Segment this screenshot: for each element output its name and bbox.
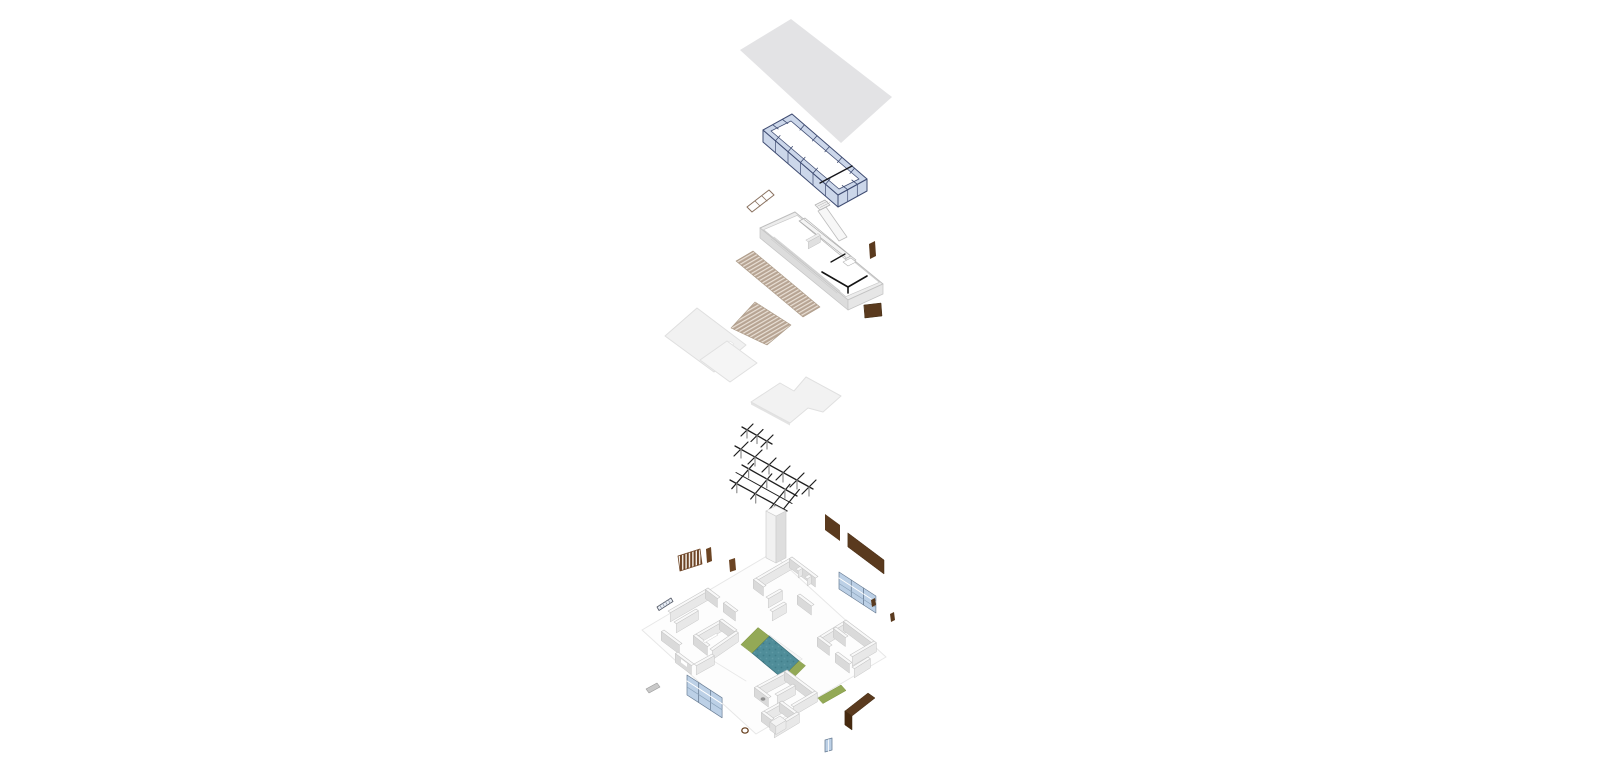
metal-sliver — [646, 683, 660, 693]
wood-speck — [890, 612, 895, 622]
cross-beam — [732, 464, 754, 489]
wood-sliver — [706, 547, 712, 563]
frame-outline — [747, 190, 774, 212]
tower-face-sw — [766, 511, 776, 563]
cross-beam — [751, 474, 772, 499]
wall-opening — [761, 697, 766, 701]
roof-slab — [740, 19, 892, 143]
service-tower — [766, 506, 786, 563]
wood-sliver — [729, 558, 736, 572]
ramp-steps — [815, 200, 830, 210]
window-frame-piece — [747, 190, 774, 212]
wood-panel — [825, 514, 840, 541]
wood-panel — [869, 241, 876, 259]
page — [0, 0, 1600, 765]
floor-plate — [751, 377, 841, 423]
wood-panel — [864, 303, 882, 318]
bent-wood-wall — [845, 693, 875, 716]
louver-screen — [678, 549, 702, 571]
tower-face-se — [776, 511, 786, 563]
round-fixture — [742, 728, 748, 733]
floor-plate-mid — [751, 377, 841, 426]
deck-block — [731, 302, 791, 345]
exploded-axo-diagram — [0, 0, 1600, 765]
roof-plane — [740, 19, 892, 143]
layers-root — [642, 19, 895, 752]
structural-frames — [730, 424, 816, 514]
wood-panel-long — [848, 533, 884, 574]
ladder-strip — [657, 598, 673, 611]
